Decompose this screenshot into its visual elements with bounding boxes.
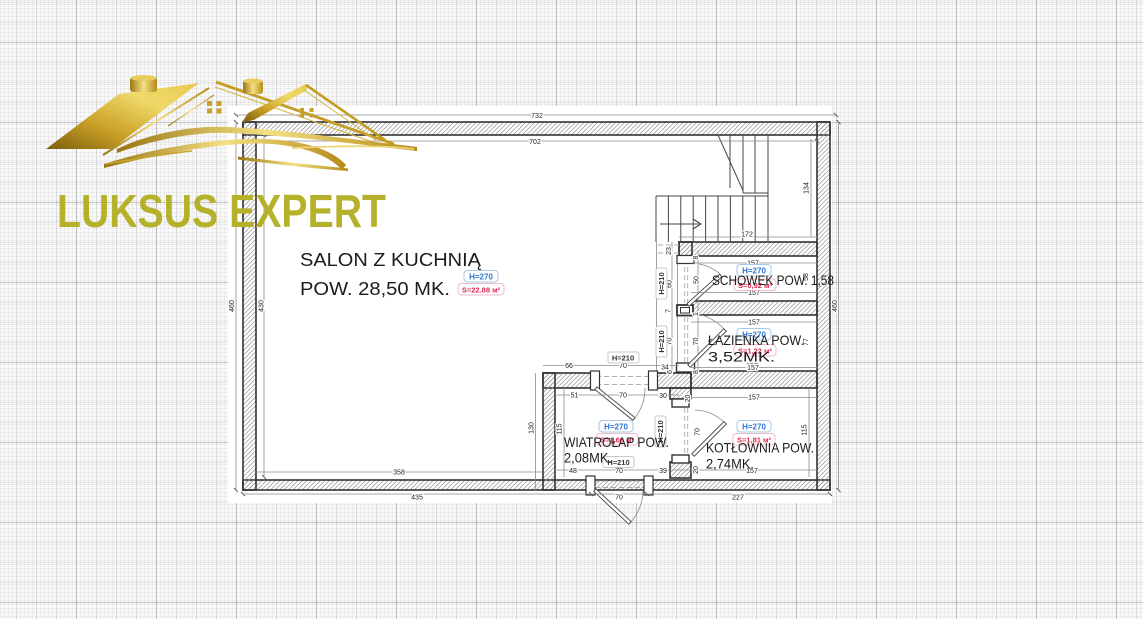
- svg-text:77: 77: [803, 338, 810, 346]
- svg-text:227: 227: [732, 495, 744, 502]
- svg-text:ŁAZIENKA POW.: ŁAZIENKA POW.: [708, 332, 804, 348]
- svg-text:8: 8: [693, 255, 700, 259]
- svg-text:435: 435: [411, 495, 423, 502]
- svg-text:30: 30: [659, 393, 667, 400]
- svg-text:70: 70: [667, 338, 674, 346]
- svg-text:POW. 28,50 MK.: POW. 28,50 MK.: [300, 279, 450, 299]
- svg-text:20: 20: [693, 466, 700, 474]
- svg-text:SALON Z KUCHNIĄ: SALON Z KUCHNIĄ: [300, 250, 482, 270]
- svg-text:7: 7: [666, 309, 673, 313]
- svg-text:157: 157: [748, 290, 760, 297]
- svg-text:H=270: H=270: [469, 273, 493, 282]
- svg-text:39: 39: [659, 468, 667, 475]
- svg-text:70: 70: [619, 363, 627, 370]
- svg-text:LUKSUS EXPERT: LUKSUS EXPERT: [57, 185, 386, 237]
- svg-text:70: 70: [693, 338, 700, 346]
- svg-text:23: 23: [666, 247, 673, 255]
- svg-text:H=210: H=210: [657, 330, 666, 352]
- svg-text:70: 70: [615, 495, 623, 502]
- svg-text:115: 115: [802, 424, 809, 435]
- svg-text:H=270: H=270: [604, 423, 628, 432]
- svg-text:S=22.88 м²: S=22.88 м²: [462, 286, 501, 295]
- svg-text:70: 70: [619, 393, 627, 400]
- svg-text:157: 157: [748, 395, 760, 402]
- svg-text:20: 20: [685, 395, 692, 403]
- svg-text:6: 6: [667, 370, 674, 374]
- svg-text:130: 130: [529, 422, 536, 434]
- svg-text:50: 50: [694, 276, 701, 284]
- svg-text:51: 51: [571, 393, 579, 400]
- svg-text:WIATROŁAP POW.: WIATROŁAP POW.: [564, 434, 669, 450]
- svg-text:48: 48: [569, 468, 577, 475]
- svg-text:2,74MK.: 2,74MK.: [706, 456, 754, 472]
- svg-text:430: 430: [259, 300, 266, 312]
- svg-text:157: 157: [747, 365, 759, 372]
- svg-text:1: 1: [693, 312, 700, 316]
- svg-text:172: 172: [741, 232, 753, 239]
- svg-text:70: 70: [695, 428, 702, 436]
- svg-text:8: 8: [693, 370, 700, 374]
- svg-text:H=210: H=210: [657, 272, 666, 294]
- svg-text:2,08MK.: 2,08MK.: [564, 450, 612, 466]
- svg-text:60: 60: [667, 280, 674, 288]
- svg-text:460: 460: [832, 300, 839, 312]
- svg-text:460: 460: [229, 300, 236, 312]
- svg-text:66: 66: [565, 363, 573, 370]
- svg-text:3,52MK.: 3,52MK.: [708, 349, 775, 365]
- svg-text:115: 115: [557, 423, 564, 434]
- svg-text:702: 702: [529, 139, 541, 146]
- svg-text:157: 157: [748, 320, 760, 327]
- svg-text:KOTŁOWNIA POW.: KOTŁOWNIA POW.: [706, 440, 814, 456]
- svg-text:70: 70: [615, 468, 623, 475]
- svg-text:H=210: H=210: [612, 354, 634, 363]
- svg-text:358: 358: [393, 470, 405, 477]
- svg-text:H=270: H=270: [742, 423, 766, 432]
- svg-text:SCHOWEK POW. 1,58: SCHOWEK POW. 1,58: [712, 272, 834, 288]
- svg-text:134: 134: [804, 182, 811, 194]
- svg-text:732: 732: [531, 113, 543, 120]
